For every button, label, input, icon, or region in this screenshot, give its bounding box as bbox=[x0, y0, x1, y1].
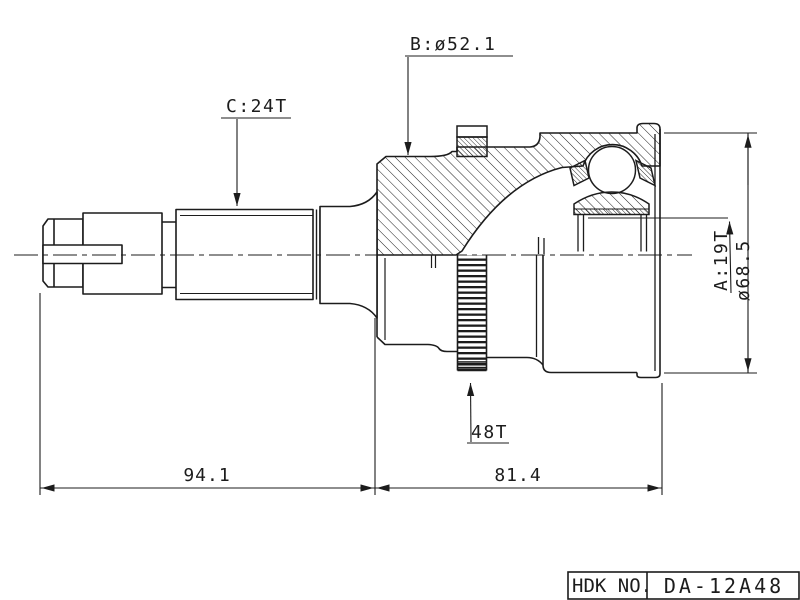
tone-ring-tooth-cap bbox=[457, 126, 487, 137]
title-block-part-number: DA-12A48 bbox=[664, 574, 784, 598]
title-block-label: HDK NO. bbox=[572, 575, 652, 597]
tone-ring-teeth-band-edge bbox=[458, 361, 487, 371]
bell-lower-lip bbox=[637, 373, 660, 378]
cv-joint-drawing: B:ø52.1 C:24T 48T A:19T ø68.5 94.1 81.4 … bbox=[0, 0, 800, 600]
cage-lower-edges bbox=[578, 215, 647, 252]
joint-body-outside-view bbox=[377, 255, 660, 378]
bearing-ball bbox=[589, 147, 636, 194]
leader-c bbox=[221, 118, 291, 206]
inner-race-spline-bore bbox=[574, 209, 649, 215]
tone-ring-tooth-section bbox=[457, 137, 487, 157]
dimension-joint-length-value: 81.4 bbox=[494, 465, 541, 486]
callout-48t-label: 48T bbox=[471, 422, 508, 443]
shaft-keyway bbox=[43, 245, 122, 264]
callout-c-label: C:24T bbox=[226, 96, 288, 117]
outer-diameter-label: ø68.5 bbox=[733, 239, 754, 301]
callout-b-label: B:ø52.1 bbox=[410, 34, 496, 55]
tone-ring-teeth-band bbox=[458, 255, 487, 370]
callout-a-label: A:19T bbox=[711, 229, 732, 291]
dimension-shaft-length-value: 94.1 bbox=[183, 465, 230, 486]
